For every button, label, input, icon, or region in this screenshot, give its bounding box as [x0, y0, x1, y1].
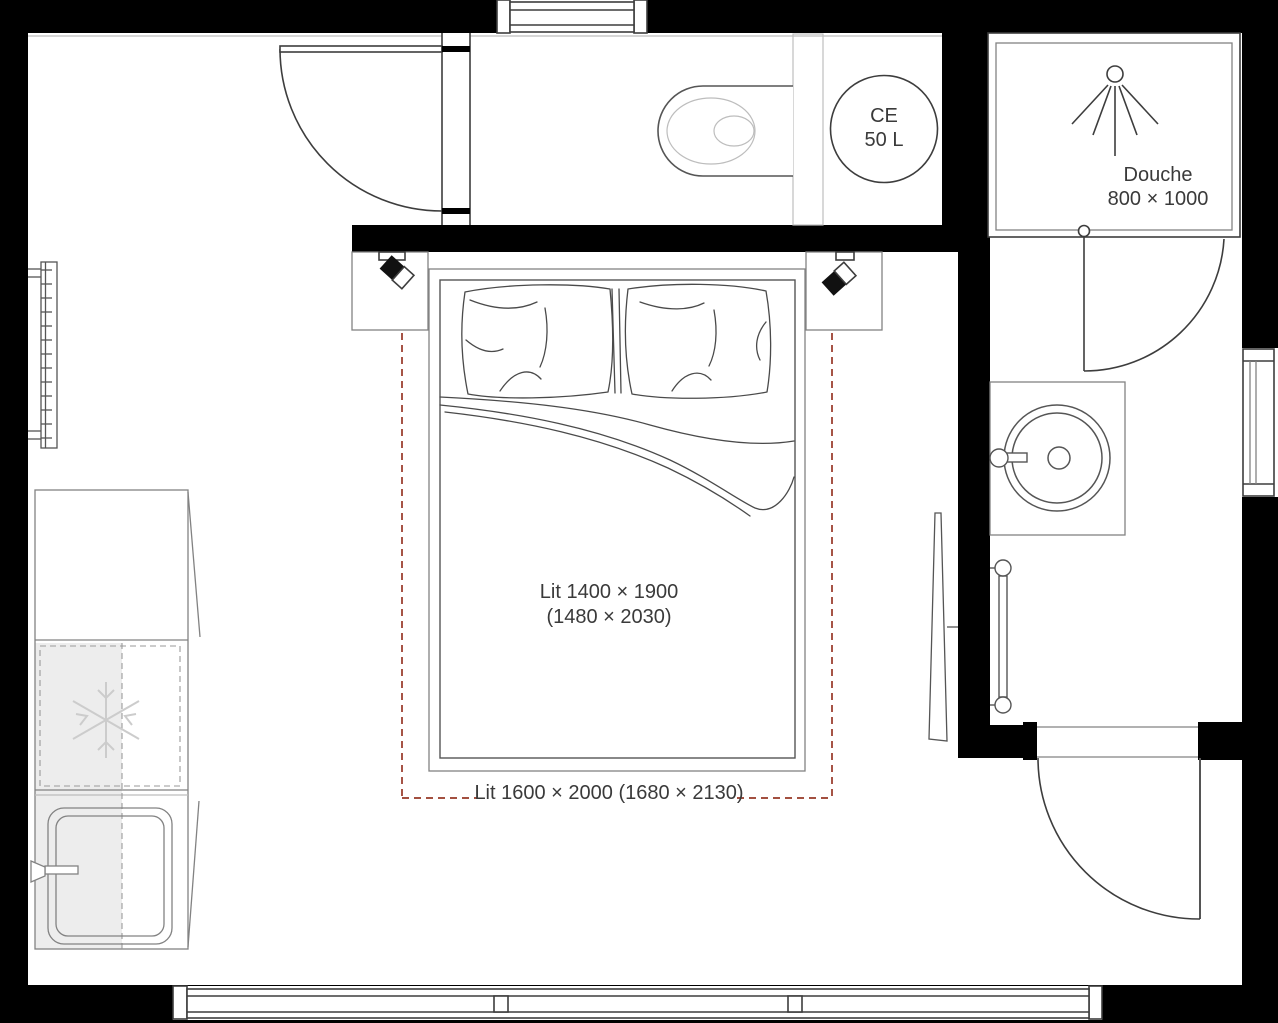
basin-drain: [1048, 447, 1070, 469]
window-top: [497, 0, 647, 33]
bed-label-2: (1480 × 2030): [546, 606, 671, 628]
door-leaf: [280, 46, 442, 52]
window-jamb: [497, 0, 510, 33]
wall-bathroom-south-right: [1212, 722, 1242, 760]
bed-label-1: Lit 1400 × 1900: [540, 581, 678, 603]
water-heater-label-2: 50 L: [865, 129, 904, 151]
wall-wc-shower-divider: [942, 33, 990, 237]
door-pivot: [1079, 226, 1090, 237]
window-right: [1242, 348, 1278, 497]
wall-bathroom-south-left: [958, 725, 1023, 758]
bath-door-jamb-left: [1023, 722, 1037, 760]
window-jamb: [1089, 986, 1102, 1019]
window-jamb: [634, 0, 647, 33]
pillow: [625, 284, 770, 398]
shower-label-2: 800 × 1000: [1108, 188, 1209, 210]
bed-alt-label: Lit 1600 × 2000 (1680 × 2130): [474, 782, 743, 804]
door-jamb-tick: [442, 208, 470, 214]
water-heater-label-1: CE: [870, 105, 898, 127]
floor-plan-drawing: CE 50 L Douche 800 × 1000: [0, 0, 1278, 1023]
wall-wc-south: [352, 225, 963, 252]
bed-area: Lit 1400 × 1900 (1480 × 2030) Lit 1600 ×…: [352, 252, 882, 804]
floor-plan: CE 50 L Douche 800 × 1000: [0, 0, 1278, 1023]
shower-label-1: Douche: [1124, 164, 1193, 186]
wall-bathroom-west: [958, 237, 990, 758]
door-jamb-tick: [442, 46, 470, 52]
window-mullion: [494, 996, 508, 1012]
window-mullion: [788, 996, 802, 1012]
bath-door-jamb-right: [1198, 722, 1212, 760]
faucet-spout: [45, 866, 78, 874]
toilet-flush: [714, 116, 754, 146]
window-jamb: [173, 986, 187, 1019]
window-bottom: [173, 986, 1102, 1020]
